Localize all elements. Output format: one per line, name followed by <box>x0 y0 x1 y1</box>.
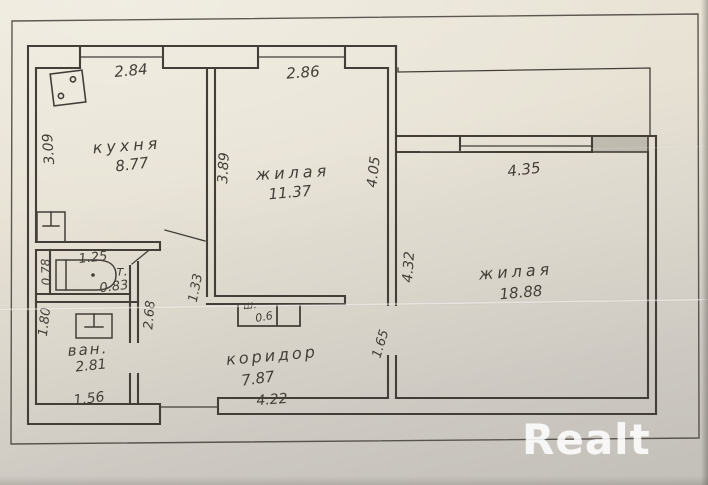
floor-plan-photo: 2.84 кухня 8.77 3.09 2.86 жилая 11.37 3.… <box>0 0 708 485</box>
walls <box>28 46 656 424</box>
dim-bath-wall: 2.68 <box>142 300 157 330</box>
balcony-outline <box>398 68 650 136</box>
dim-toilet-depth: 0.78 <box>40 258 53 285</box>
dim-living1-depth-right: 4.05 <box>365 156 383 189</box>
dim-bath-width: 1.56 <box>73 390 106 408</box>
closet-area-label: 0.6 <box>254 310 273 324</box>
dim-bath-depth: 1.80 <box>37 307 53 337</box>
dim-living1-width: 2.86 <box>286 64 320 81</box>
corridor-area-label: 7.87 <box>240 369 275 389</box>
kitchen-sink-icon <box>37 212 65 242</box>
living1-room-label: жилая <box>255 163 330 183</box>
balcony-door-icon <box>592 136 648 152</box>
bathroom-area-label: 2.81 <box>75 357 107 374</box>
toilet-area-label: 0.83 <box>99 279 129 295</box>
living1-area-label: 11.37 <box>268 184 312 203</box>
dim-kitchen-width: 2.84 <box>114 62 149 80</box>
dim-toilet-width: 1.25 <box>78 250 108 266</box>
realt-watermark-logo: Realt <box>522 419 651 461</box>
kitchen-room-label: кухня <box>92 136 162 157</box>
dim-corridor-length: 4.22 <box>256 392 288 408</box>
dim-kitchen-depth: 3.09 <box>41 133 57 165</box>
closet-room-label: ш. <box>243 299 257 311</box>
dim-living1-depth-left: 3.89 <box>216 152 232 184</box>
stove-icon <box>50 70 86 106</box>
dim-living2-width: 4.35 <box>507 161 542 180</box>
kitchen-area-label: 8.77 <box>115 156 150 175</box>
floor-plan-drawing <box>0 0 708 485</box>
toilet-room-label: т. <box>116 266 128 279</box>
dim-living2-depth: 4.32 <box>401 251 417 283</box>
washbasin-icon <box>76 314 112 338</box>
living2-area-label: 18.88 <box>499 284 543 303</box>
